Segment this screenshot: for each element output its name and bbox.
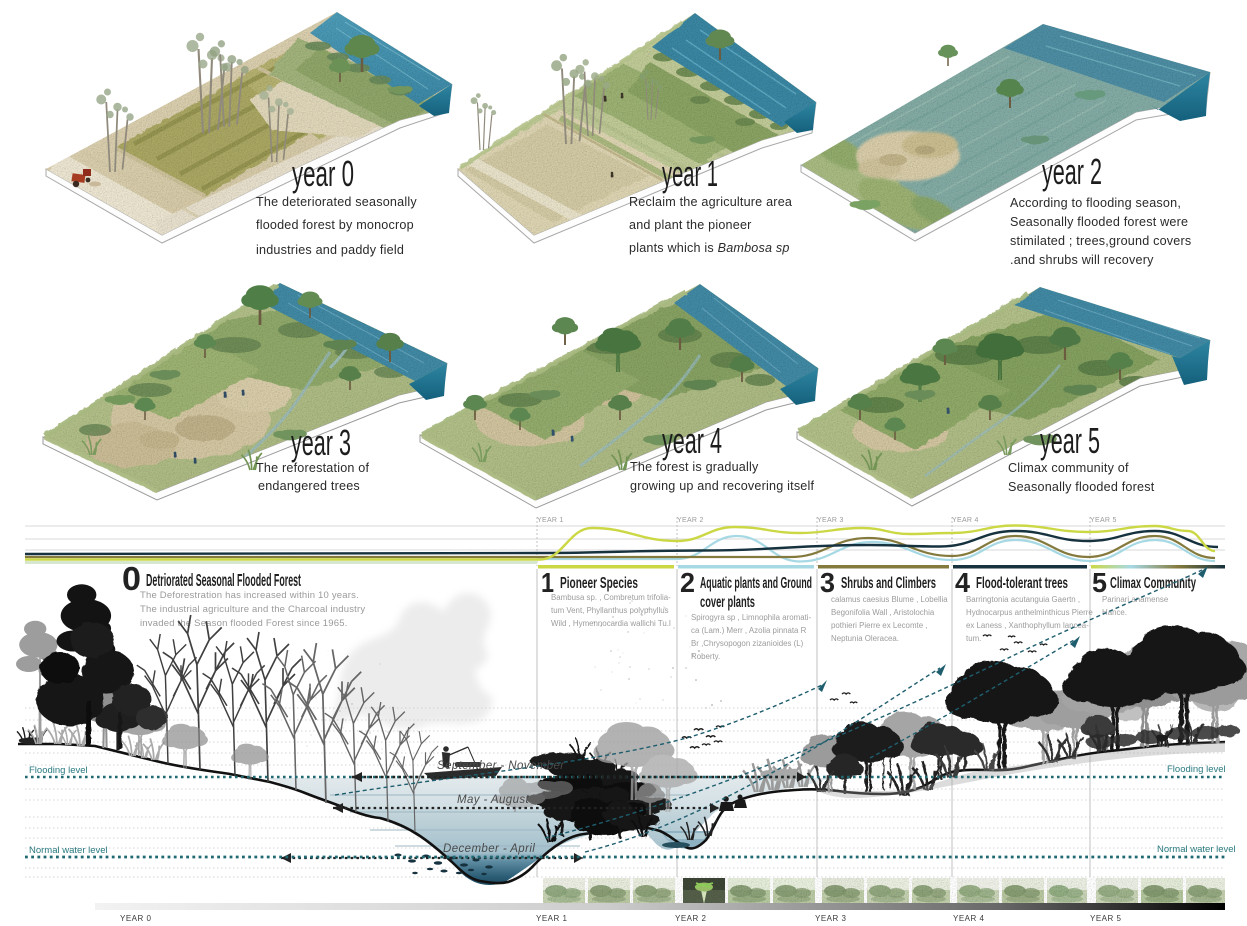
svg-text:Wild , Hymennocardia wallichi: Wild , Hymennocardia wallichi Tu.l — [551, 619, 671, 628]
svg-text:pothieri Pierre ex Lecomte ,: pothieri Pierre ex Lecomte , — [831, 621, 928, 630]
svg-text:invaded the Season flooded For: invaded the Season flooded Forest since … — [140, 618, 348, 629]
svg-text:Shrubs and Climbers: Shrubs and Climbers — [841, 575, 936, 592]
svg-text:endangered trees: endangered trees — [258, 479, 360, 493]
svg-text:YEAR 3: YEAR 3 — [815, 914, 847, 923]
svg-text:Pioneer Species: Pioneer Species — [560, 575, 638, 592]
svg-text:The industrial agriculture and: The industrial agriculture and the Charc… — [140, 604, 365, 615]
svg-text:YEAR 1: YEAR 1 — [537, 517, 564, 524]
svg-text:year 4: year 4 — [662, 420, 722, 461]
svg-text:Reclaim the agriculture area: Reclaim the agriculture area — [629, 195, 792, 209]
svg-text:Flood-tolerant trees: Flood-tolerant trees — [976, 575, 1068, 592]
svg-text:2: 2 — [680, 567, 695, 598]
svg-text:Climax community of: Climax community of — [1008, 461, 1129, 475]
svg-text:stimilated ; trees,ground cove: stimilated ; trees,ground covers — [1010, 234, 1191, 248]
svg-text:YEAR 2: YEAR 2 — [675, 914, 707, 923]
svg-text:tum Vent, Phyllanthus polyphyl: tum Vent, Phyllanthus polyphyllus — [551, 606, 669, 615]
svg-text:Climax Community: Climax Community — [1110, 575, 1196, 592]
svg-text:Begonifolia Wall , Aristolochi: Begonifolia Wall , Aristolochia — [831, 608, 935, 617]
svg-text:Roberty.: Roberty. — [691, 652, 720, 661]
svg-text:ex Laness , Xanthophyllum lanc: ex Laness , Xanthophyllum lancea- — [966, 621, 1089, 630]
svg-text:flooded forest by monocrop: flooded forest by monocrop — [256, 218, 414, 232]
svg-text:YEAR 4: YEAR 4 — [952, 517, 979, 524]
svg-text:year 0: year 0 — [292, 153, 354, 194]
svg-text:YEAR 4: YEAR 4 — [953, 914, 985, 923]
svg-text:According to flooding season,: According to flooding season, — [1010, 196, 1181, 210]
svg-text:.and shrubs will recovery: .and shrubs will recovery — [1010, 253, 1154, 267]
svg-text:tum.: tum. — [966, 634, 981, 643]
svg-text:Neptunia Oleracea.: Neptunia Oleracea. — [831, 634, 899, 643]
svg-text:The reforestation of: The reforestation of — [256, 461, 370, 475]
svg-text:year 2: year 2 — [1042, 151, 1102, 192]
svg-text:0: 0 — [122, 560, 141, 597]
svg-text:The Deforestration has increas: The Deforestration has increased within … — [140, 590, 359, 601]
svg-text:industries and paddy field: industries and paddy field — [256, 243, 404, 257]
svg-text:ca (Lam.) Merr , Azolia pinnat: ca (Lam.) Merr , Azolia pinnata R — [691, 626, 807, 635]
svg-text:4: 4 — [955, 567, 970, 598]
svg-text:YEAR 3: YEAR 3 — [817, 517, 844, 524]
svg-text:and plant the pioneer: and plant the pioneer — [629, 218, 752, 232]
svg-text:Seasonally flooded forest were: Seasonally flooded forest were — [1010, 215, 1188, 229]
svg-text:May - August: May - August — [457, 794, 530, 806]
svg-text:cover plants: cover plants — [700, 594, 755, 611]
svg-text:YEAR 5: YEAR 5 — [1090, 914, 1122, 923]
svg-text:Flooding level: Flooding level — [1167, 764, 1226, 775]
svg-text:December - April: December - April — [443, 843, 535, 855]
svg-text:year 3: year 3 — [291, 422, 351, 463]
svg-text:calamus caesius Blume , Lobell: calamus caesius Blume , Lobellia — [831, 595, 948, 604]
svg-text:Bambusa sp. , Combretum trifol: Bambusa sp. , Combretum trifolia- — [551, 593, 671, 602]
svg-text:year 5: year 5 — [1040, 420, 1100, 461]
svg-text:Br ,Chrysopogon zizanioides (L: Br ,Chrysopogon zizanioides (L) — [691, 639, 804, 648]
svg-text:Normal water level: Normal water level — [1157, 844, 1236, 855]
svg-text:Aquatic plants and Ground: Aquatic plants and Ground — [700, 575, 812, 592]
svg-text:3: 3 — [820, 567, 835, 598]
svg-text:Normal water level: Normal water level — [29, 845, 108, 856]
svg-text:The forest is gradually: The forest is gradually — [630, 460, 759, 474]
svg-text:growing up and recovering itse: growing up and recovering itself — [630, 479, 815, 493]
svg-text:Barringtonia acutanguia Gaertn: Barringtonia acutanguia Gaertn , — [966, 595, 1080, 604]
svg-text:YEAR 5: YEAR 5 — [1090, 517, 1117, 524]
svg-text:Flooding level: Flooding level — [29, 765, 88, 776]
svg-text:Detriorated Seasonal Flooded F: Detriorated Seasonal Flooded Forest — [146, 570, 301, 590]
svg-text:Hydnocarpus anthelminthicus Pi: Hydnocarpus anthelminthicus Pierre — [966, 608, 1093, 617]
svg-text:year 1: year 1 — [662, 153, 718, 194]
svg-text:Seasonally flooded forest: Seasonally flooded forest — [1008, 480, 1155, 494]
svg-text:YEAR 2: YEAR 2 — [677, 517, 704, 524]
svg-text:The deteriorated seasonally: The deteriorated seasonally — [256, 195, 417, 209]
svg-text:YEAR 1: YEAR 1 — [536, 914, 568, 923]
svg-text:plants which is Bambosa sp: plants which is Bambosa sp — [629, 241, 790, 255]
svg-text:Spirogyra sp , Limnophila arom: Spirogyra sp , Limnophila aromati- — [691, 613, 812, 622]
svg-text:5: 5 — [1092, 567, 1107, 598]
svg-text:YEAR 0: YEAR 0 — [120, 914, 152, 923]
svg-text:September - November: September - November — [437, 760, 565, 772]
